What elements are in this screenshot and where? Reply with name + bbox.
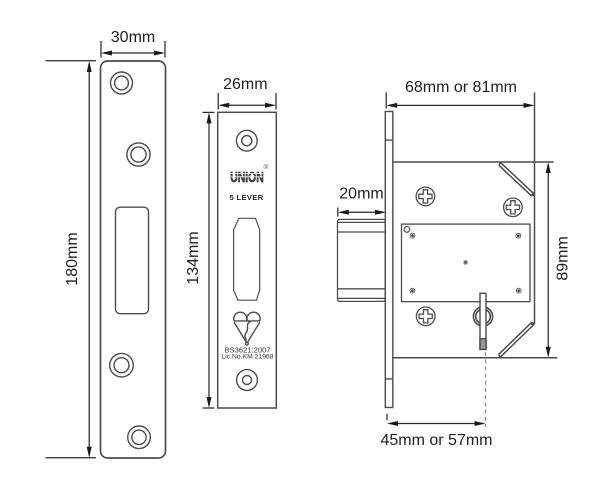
svg-text:26mm: 26mm (223, 76, 267, 93)
svg-text:UNION: UNION (230, 170, 264, 186)
svg-text:68mm or 81mm: 68mm or 81mm (405, 79, 517, 96)
svg-text:89mm: 89mm (554, 236, 571, 280)
svg-text:Lic.No.KM.21968: Lic.No.KM.21968 (221, 353, 273, 360)
svg-text:®: ® (264, 163, 269, 171)
svg-text:20mm: 20mm (339, 186, 383, 203)
svg-text:180mm: 180mm (64, 232, 81, 285)
svg-text:30mm: 30mm (111, 29, 155, 46)
svg-text:45mm or 57mm: 45mm or 57mm (380, 432, 492, 449)
svg-text:5 LEVER: 5 LEVER (229, 193, 263, 202)
svg-text:134mm: 134mm (185, 231, 202, 284)
